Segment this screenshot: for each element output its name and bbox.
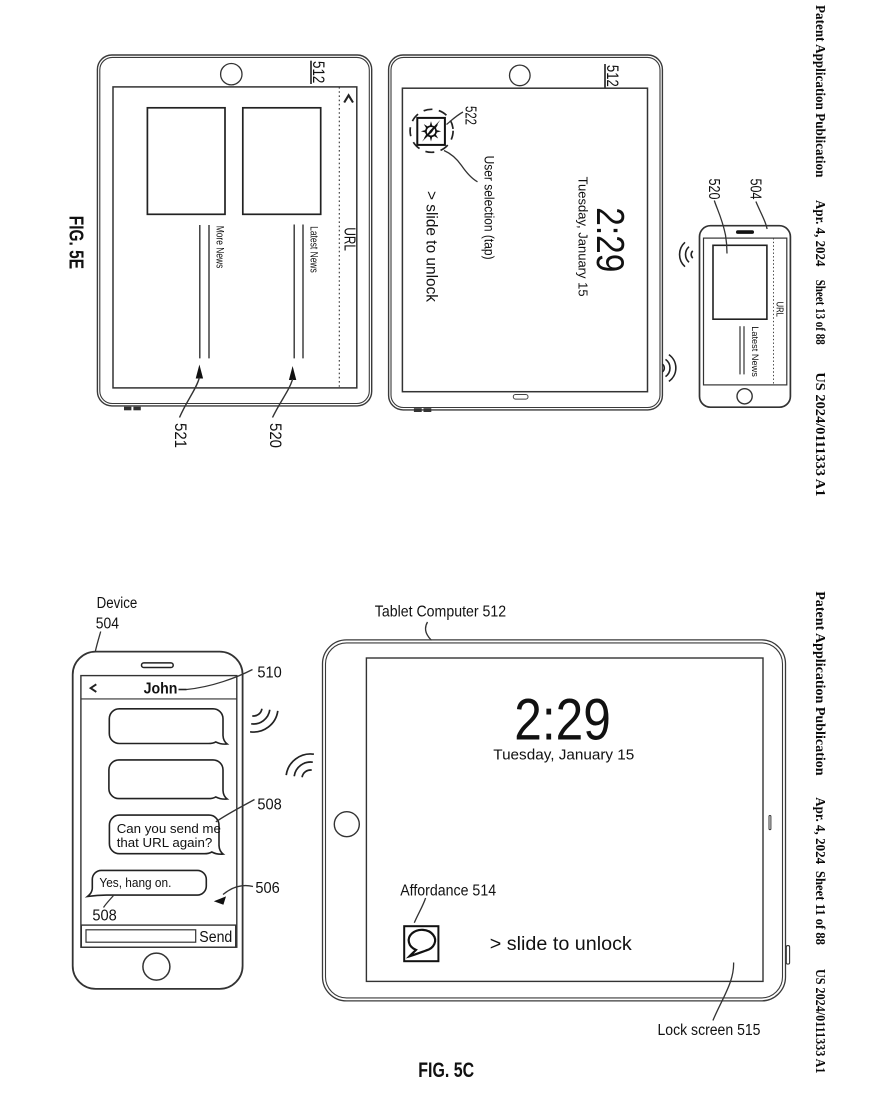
svg-text:US 2024/0111333 A1: US 2024/0111333 A1	[813, 372, 828, 496]
svg-text:Tuesday, January 15: Tuesday, January 15	[493, 746, 634, 763]
svg-text:2:29: 2:29	[514, 687, 611, 752]
svg-text:Tuesday, January 15: Tuesday, January 15	[575, 177, 590, 297]
svg-text:520: 520	[705, 179, 722, 200]
svg-text:FIG. 5E: FIG. 5E	[65, 216, 87, 269]
svg-text:Affordance 514: Affordance 514	[400, 882, 496, 899]
svg-text:Patent Application Publication: Patent Application Publication	[813, 5, 828, 178]
svg-text:506: 506	[255, 880, 279, 897]
svg-text:508: 508	[257, 797, 281, 814]
svg-text:Patent Application Publication: Patent Application Publication	[813, 591, 828, 776]
svg-text:510: 510	[257, 664, 281, 681]
svg-text:522: 522	[461, 106, 478, 125]
svg-text:Device: Device	[97, 595, 138, 612]
svg-text:504: 504	[746, 179, 763, 200]
svg-text:508: 508	[92, 908, 116, 925]
svg-text:521: 521	[171, 423, 189, 448]
svg-text:Apr. 4, 2024: Apr. 4, 2024	[813, 200, 828, 267]
svg-text:John: John	[144, 681, 178, 698]
svg-text:Latest News: Latest News	[308, 226, 320, 273]
svg-text:512: 512	[309, 61, 327, 83]
svg-text:Lock screen 515: Lock screen 515	[658, 1022, 761, 1039]
svg-text:Sheet 13 of 88: Sheet 13 of 88	[813, 280, 828, 345]
svg-text:Latest News: Latest News	[750, 326, 760, 377]
svg-text:User selection (tap): User selection (tap)	[481, 156, 496, 260]
svg-text:520: 520	[266, 423, 284, 448]
svg-text:> slide to unlock: > slide to unlock	[423, 191, 440, 303]
svg-text:> slide to unlock: > slide to unlock	[490, 934, 633, 955]
svg-text:Tablet Computer 512: Tablet Computer 512	[375, 603, 506, 620]
svg-text:Apr. 4, 2024: Apr. 4, 2024	[813, 797, 828, 864]
svg-text:504: 504	[96, 616, 119, 633]
svg-text:Can you send me: Can you send me	[117, 821, 221, 836]
svg-text:2:29: 2:29	[588, 207, 631, 272]
svg-text:URL: URL	[774, 302, 785, 318]
svg-text:512: 512	[603, 65, 621, 87]
svg-text:URL: URL	[340, 227, 357, 251]
svg-text:More News: More News	[214, 226, 226, 269]
svg-text:Sheet 11 of 88: Sheet 11 of 88	[813, 871, 828, 945]
svg-text:US 2024/0111333 A1: US 2024/0111333 A1	[813, 969, 828, 1074]
svg-text:Yes, hang on.: Yes, hang on.	[99, 875, 171, 890]
svg-text:Send: Send	[199, 929, 232, 946]
svg-text:FIG. 5C: FIG. 5C	[418, 1058, 474, 1082]
svg-text:that URL again?: that URL again?	[117, 835, 213, 850]
